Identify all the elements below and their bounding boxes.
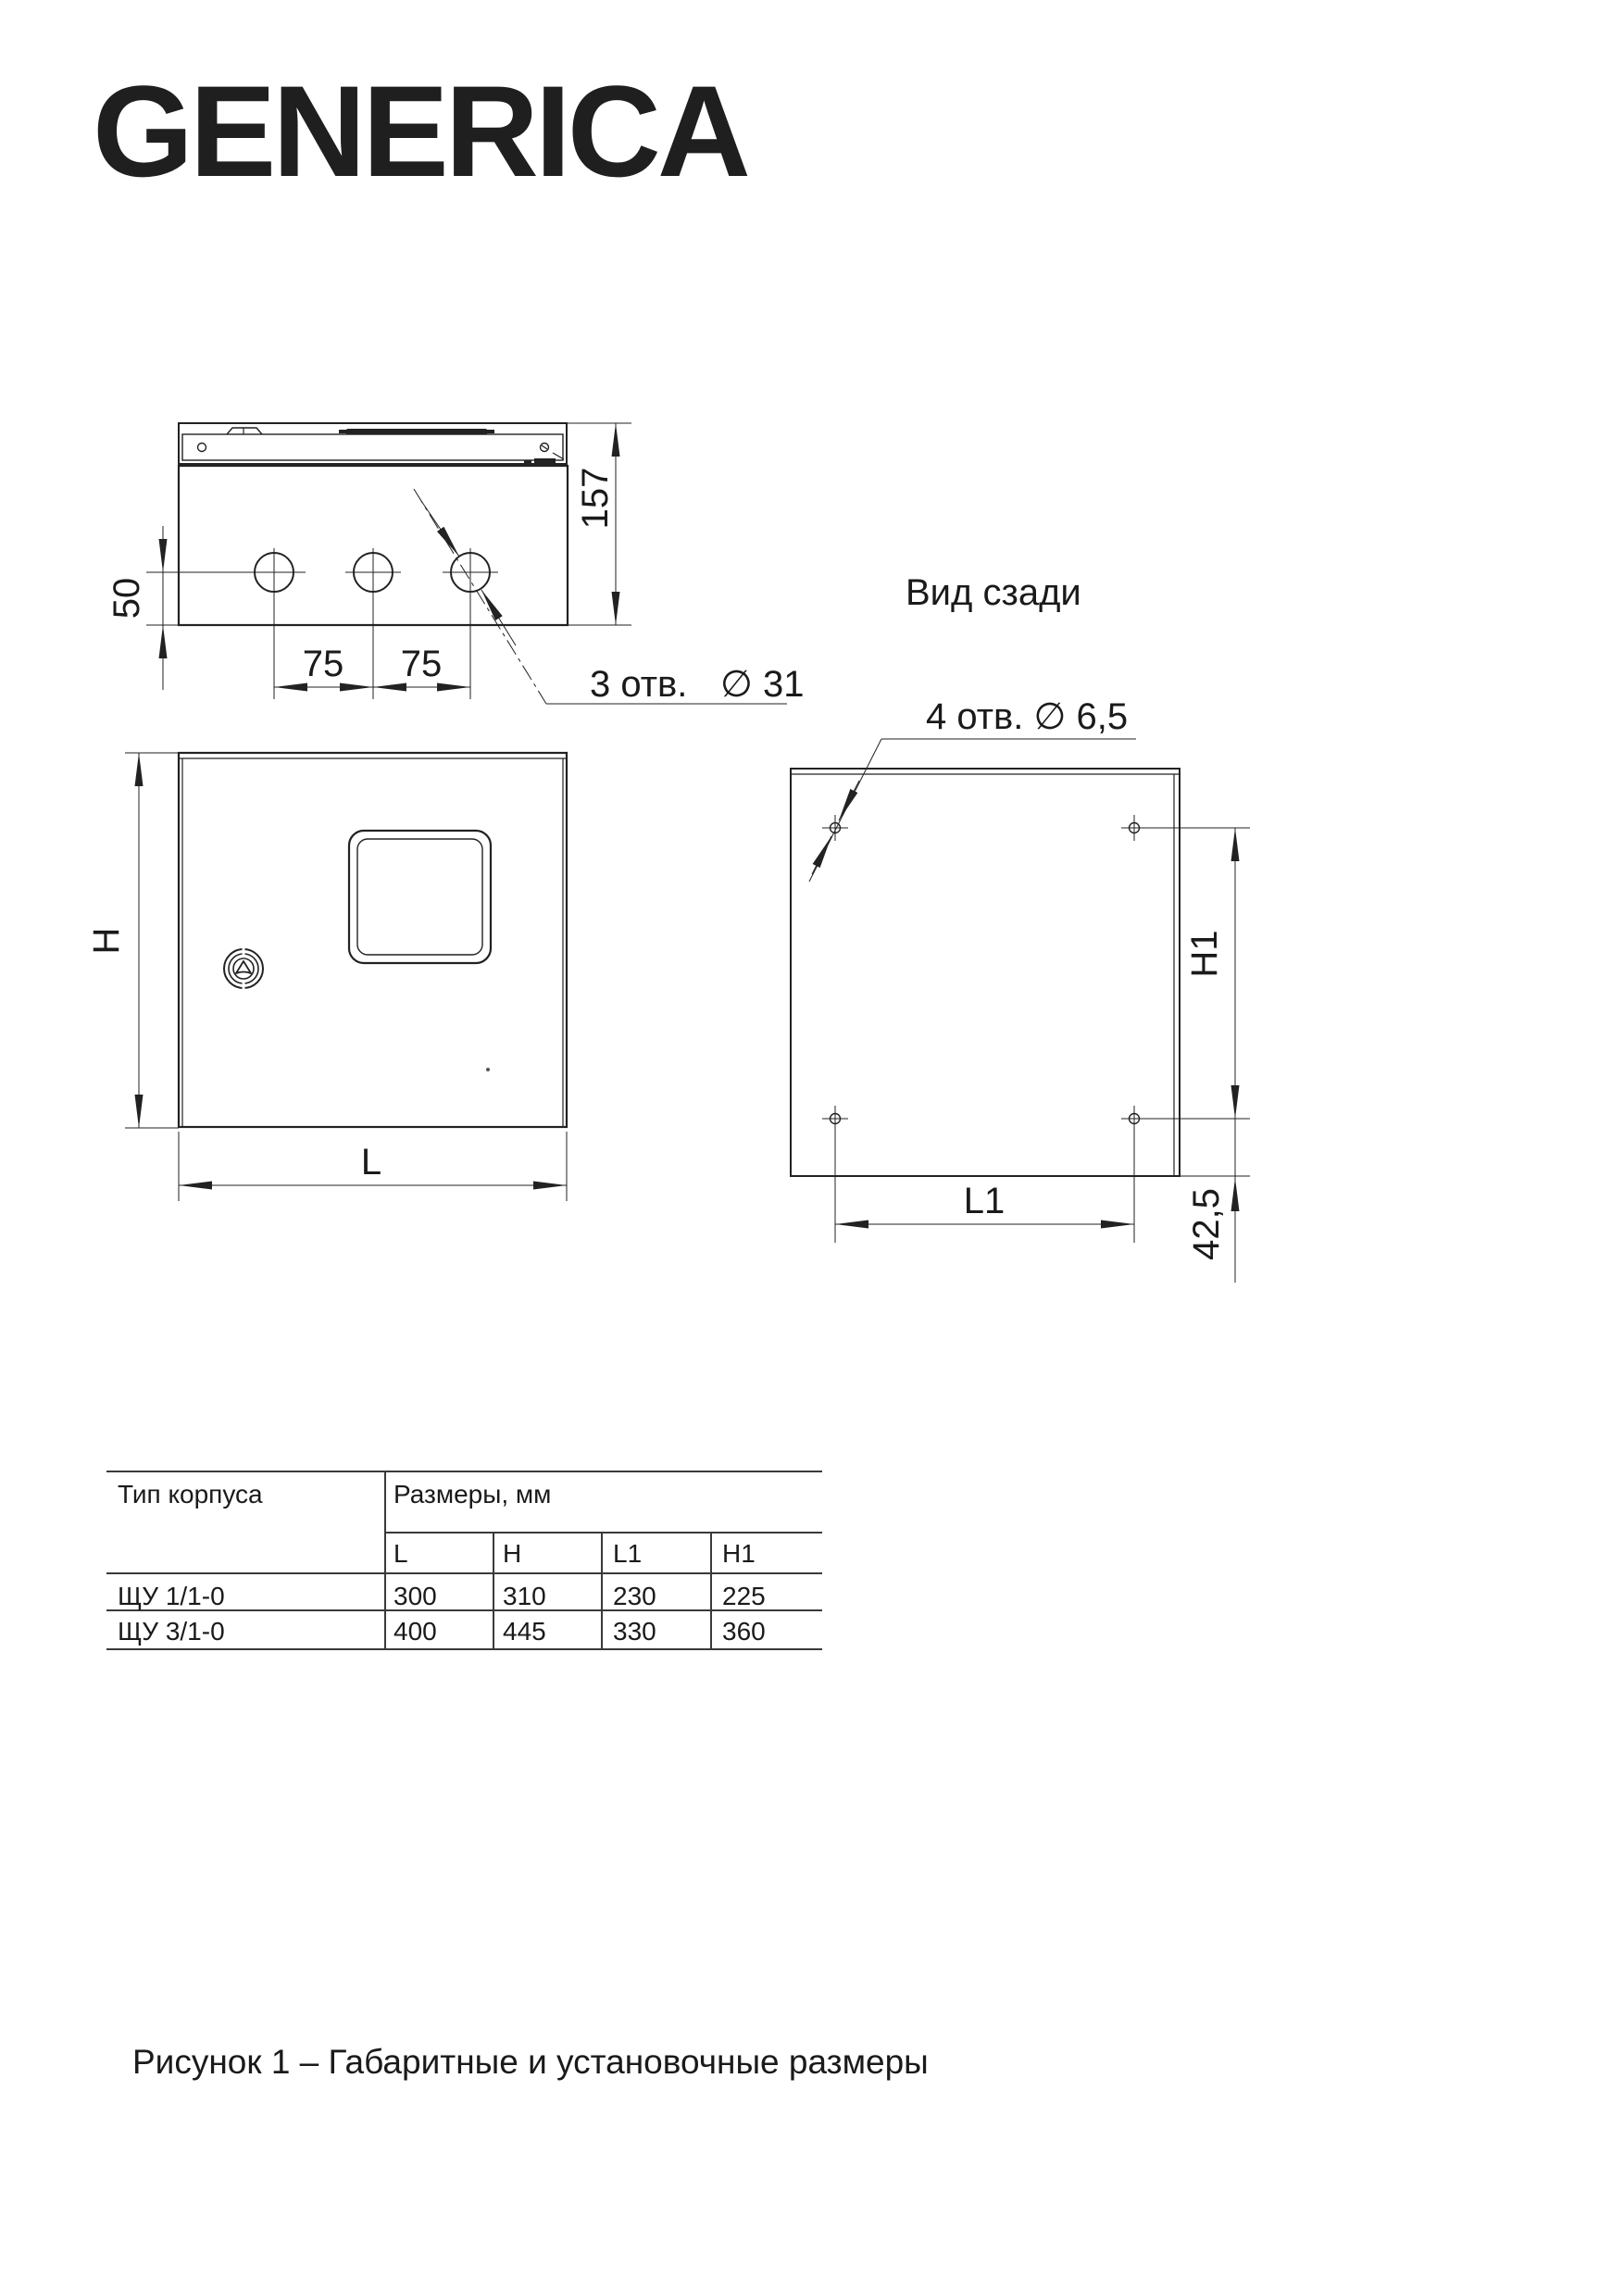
rear-view-holes-callout: 4 отв. ∅ 6,5 (926, 696, 1128, 737)
table-row1-type: ЩУ 1/1-0 (118, 1582, 225, 1611)
figure-caption: Рисунок 1 – Габаритные и установочные ра… (132, 2043, 929, 2082)
dim-75-left-label: 75 (303, 644, 344, 684)
dim-L1-label: L1 (964, 1181, 1006, 1221)
table-header-sizes: Размеры, мм (394, 1480, 551, 1509)
surface-mark (486, 1068, 490, 1071)
screw-left-icon (198, 444, 206, 452)
dim-H1-label: H1 (1184, 930, 1225, 977)
table-row1-L: 300 (394, 1582, 437, 1611)
top-view-holes-diameter-label: ∅ 31 (720, 664, 804, 705)
latch-detail (534, 458, 556, 464)
table-row1-H: 310 (503, 1582, 546, 1611)
table-subheader-H: H (503, 1539, 521, 1569)
table-subheader-L: L (394, 1539, 408, 1569)
table-row2-type: ЩУ 3/1-0 (118, 1617, 225, 1646)
door-lock-icon (224, 947, 263, 990)
table-row1-H1: 225 (722, 1582, 766, 1611)
rear-view (791, 739, 1250, 1283)
table-row2-H1: 360 (722, 1617, 766, 1646)
dim-50-label: 50 (106, 578, 147, 620)
front-view-outline (179, 753, 567, 1127)
dimensions-table: Тип корпуса Размеры, мм L H L1 H1 ЩУ 1/1… (106, 1471, 822, 1650)
table-row2-L1: 330 (613, 1617, 656, 1646)
table-divider-main (384, 1471, 386, 1650)
front-view (125, 753, 567, 1201)
table-subheader-L1: L1 (613, 1539, 642, 1569)
rear-view-outline (791, 769, 1180, 1176)
table-subheader-H1: H1 (722, 1539, 756, 1569)
table-border-bottom (106, 1648, 822, 1650)
dim-157-label: 157 (575, 468, 616, 530)
table-header-type: Тип корпуса (118, 1480, 263, 1509)
top-view-door-edge (182, 434, 563, 460)
dimension-drawing: 3 отв. ∅ 31 50 75 75 157 (0, 0, 1624, 2291)
table-divider-l-h (493, 1532, 494, 1650)
top-view-holes-count-label: 3 отв. (590, 664, 687, 705)
dim-L-label: L (361, 1142, 381, 1183)
meter-window-outer (349, 831, 491, 963)
rear-view-title: Вид сзади (906, 572, 1081, 613)
table-row2-H: 445 (503, 1617, 546, 1646)
top-view (146, 423, 787, 704)
table-divider-h-l1 (601, 1532, 603, 1650)
datasheet-page: GENERICA (0, 0, 1624, 2291)
table-divider-l1-h1 (710, 1532, 712, 1650)
meter-window-inner (357, 839, 482, 955)
dim-H-label: H (86, 928, 127, 955)
table-line-subheader-top (384, 1532, 822, 1534)
dim-42-5-label: 42,5 (1186, 1188, 1227, 1260)
table-row1-L1: 230 (613, 1582, 656, 1611)
mounting-holes (822, 815, 1147, 1132)
dim-75-right-label: 75 (401, 644, 443, 684)
table-line-header-bottom (106, 1572, 822, 1574)
table-border-top (106, 1471, 822, 1472)
table-row2-L: 400 (394, 1617, 437, 1646)
handle-bar (345, 429, 488, 434)
hinge-bump (227, 428, 262, 434)
